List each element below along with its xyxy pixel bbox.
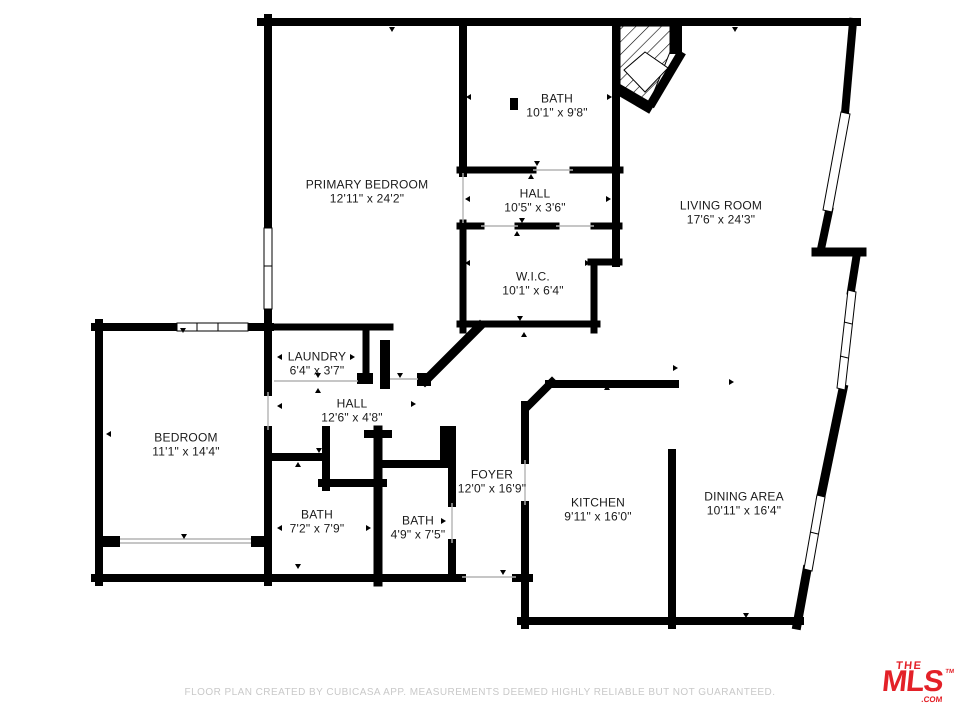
disclaimer-text: FLOOR PLAN CREATED BY CUBICASA APP. MEAS… [0,687,960,698]
logo-tm-mark: TM [945,669,954,675]
floor-plan-page: BATH10'1" x 9'8"PRIMARY BEDROOM12'11" x … [0,0,960,720]
themls-logo: THE MLS TM .COM [877,659,956,709]
logo-com-text: .COM [921,695,943,704]
interior-walls [265,22,675,625]
windows [177,112,856,571]
logo-mls-text: MLS [881,667,944,697]
fireplace-hatch [616,26,682,109]
floor-plan-drawing [0,0,960,720]
fixture-marker [510,98,518,110]
